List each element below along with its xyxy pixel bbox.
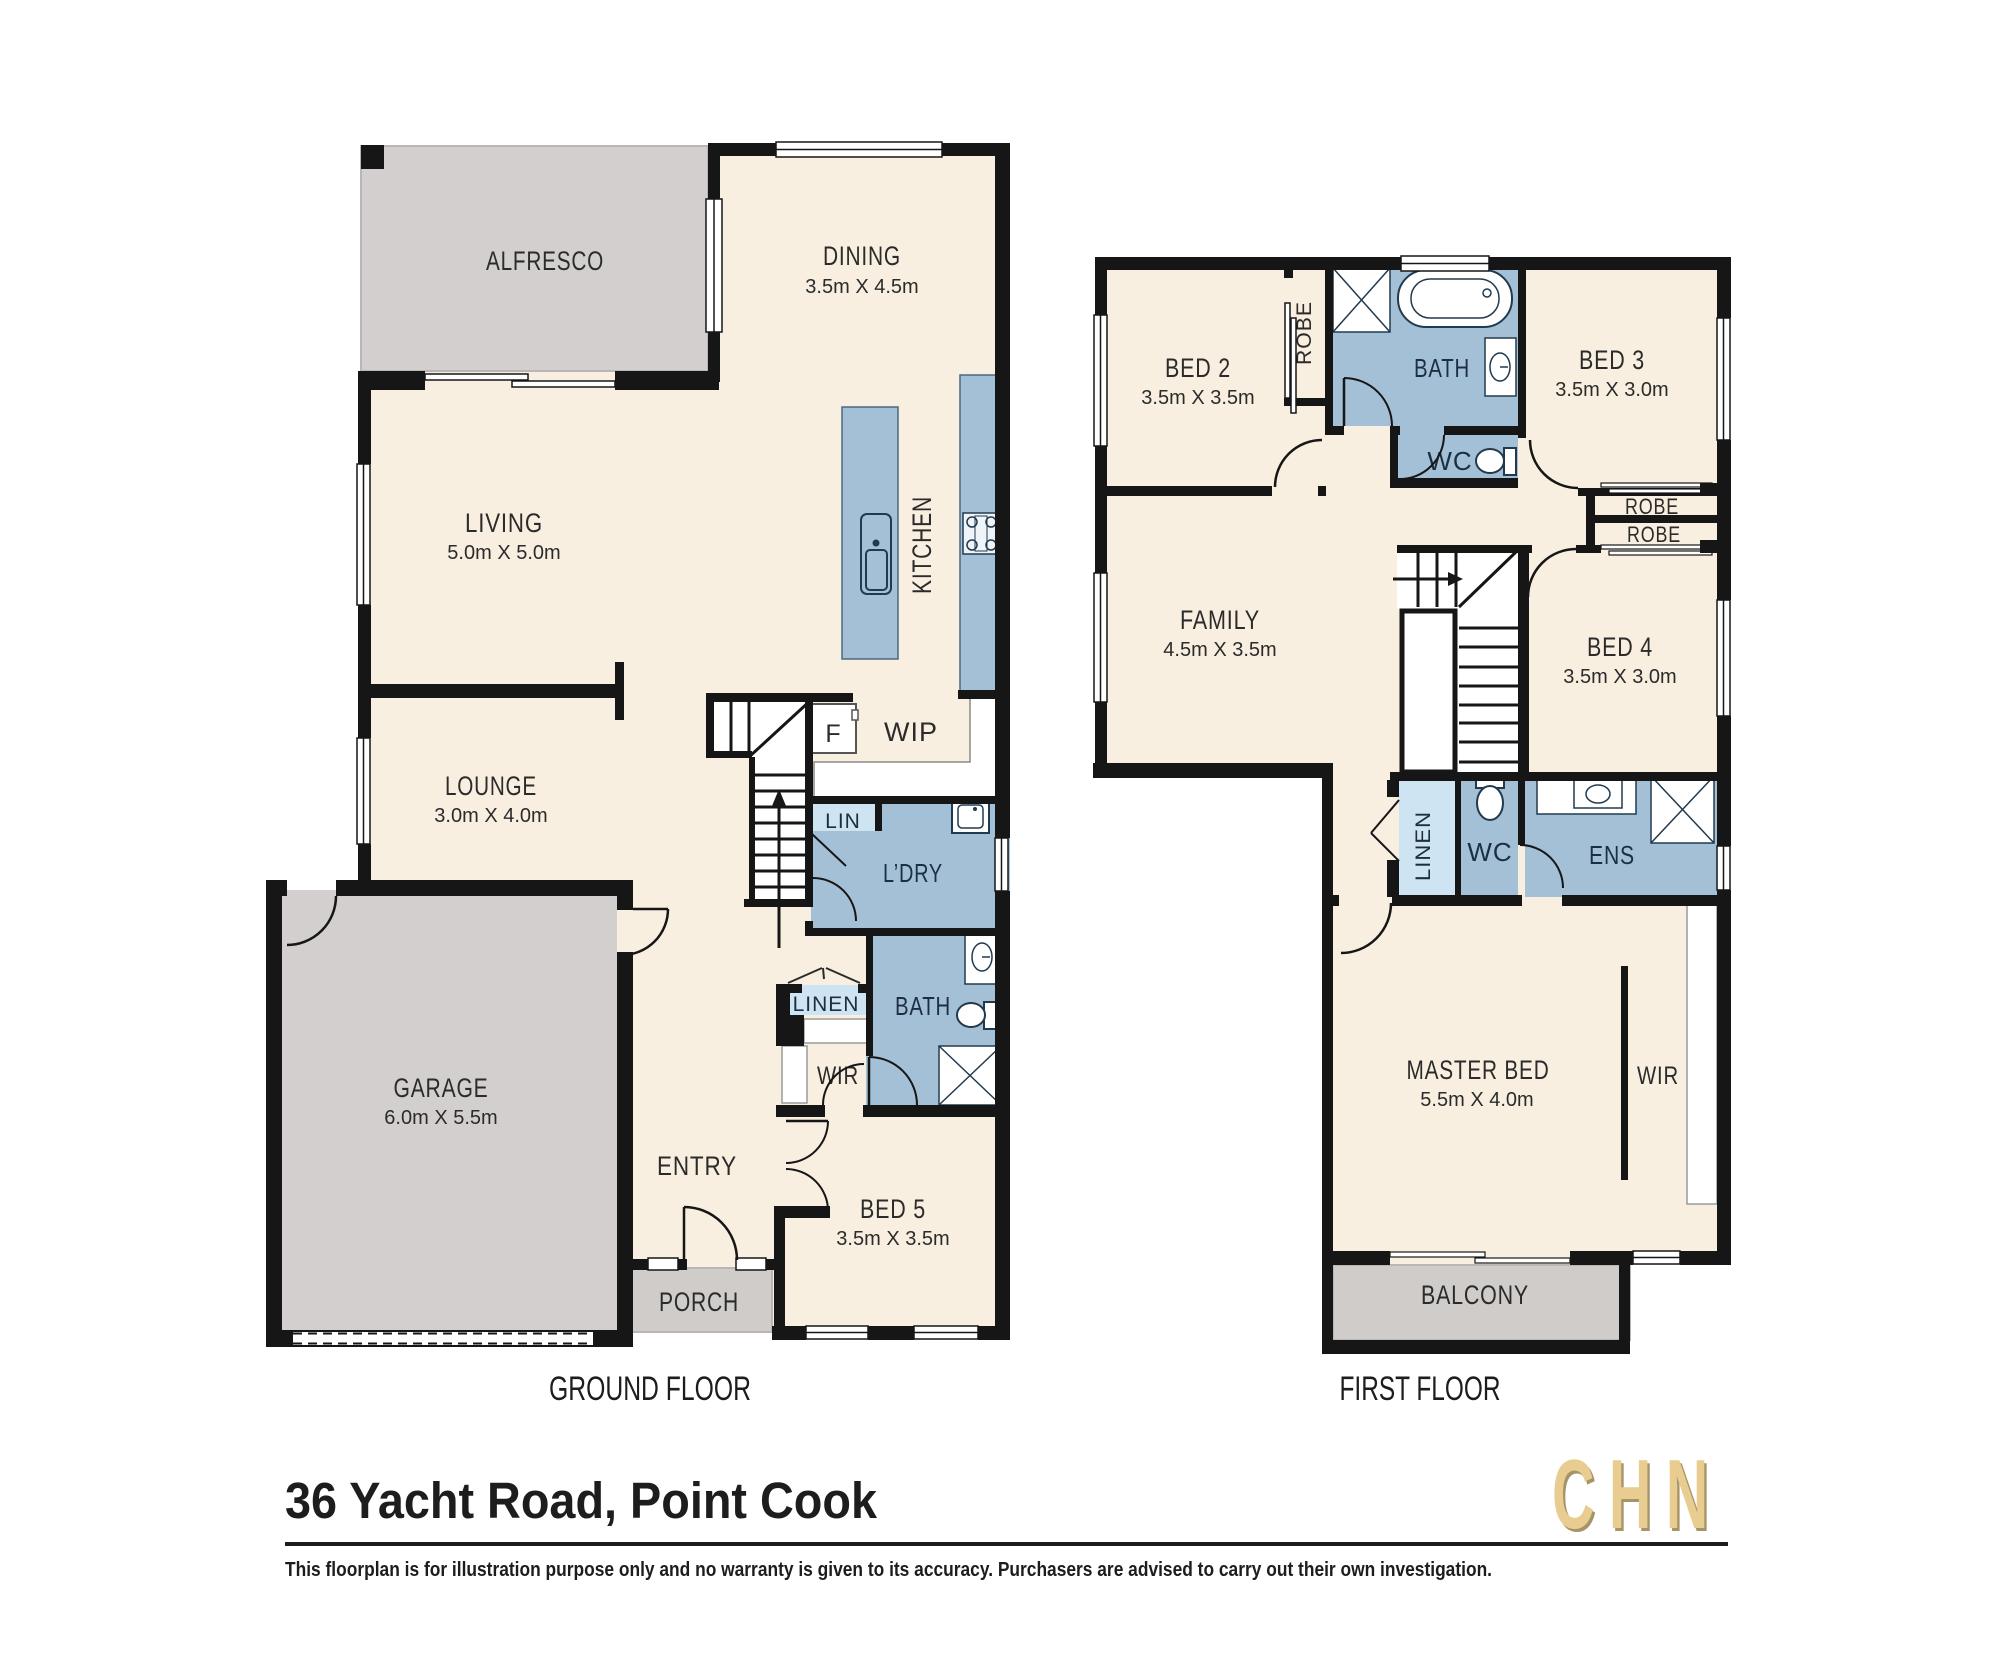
- svg-text:F: F: [825, 720, 840, 748]
- svg-text:WC: WC: [1427, 446, 1472, 476]
- svg-text:5.5m X 4.0m: 5.5m X 4.0m: [1420, 1089, 1533, 1111]
- svg-text:ENTRY: ENTRY: [657, 1151, 737, 1181]
- svg-text:KITCHEN: KITCHEN: [907, 496, 937, 594]
- svg-text:BATH: BATH: [895, 991, 951, 1021]
- svg-text:36 Yacht Road, Point Cook: 36 Yacht Road, Point Cook: [285, 1472, 878, 1529]
- svg-text:3.5m X 4.5m: 3.5m X 4.5m: [805, 276, 918, 298]
- svg-text:5.0m X 5.0m: 5.0m X 5.0m: [447, 542, 560, 564]
- svg-text:LOUNGE: LOUNGE: [445, 771, 537, 801]
- svg-text:DINING: DINING: [823, 241, 901, 271]
- svg-text:BED 3: BED 3: [1579, 345, 1645, 375]
- svg-text:3.5m X 3.5m: 3.5m X 3.5m: [836, 1228, 949, 1250]
- svg-text:GARAGE: GARAGE: [394, 1073, 489, 1103]
- svg-text:ROBE: ROBE: [1627, 522, 1681, 547]
- svg-text:6.0m X 5.5m: 6.0m X 5.5m: [384, 1107, 497, 1129]
- svg-text:GROUND FLOOR: GROUND FLOOR: [549, 1370, 751, 1408]
- svg-text:ENS: ENS: [1589, 840, 1635, 870]
- svg-text:BALCONY: BALCONY: [1421, 1280, 1529, 1310]
- svg-text:BED 2: BED 2: [1165, 353, 1231, 383]
- svg-text:WIP: WIP: [884, 717, 938, 747]
- svg-text:BED 4: BED 4: [1587, 632, 1653, 662]
- svg-text:MASTER BED: MASTER BED: [1407, 1055, 1550, 1085]
- svg-text:FIRST FLOOR: FIRST FLOOR: [1340, 1370, 1501, 1408]
- svg-text:LINEN: LINEN: [793, 993, 860, 1016]
- svg-text:BATH: BATH: [1414, 353, 1470, 383]
- svg-text:LINEN: LINEN: [1412, 811, 1435, 881]
- svg-text:WC: WC: [1467, 837, 1512, 867]
- svg-text:L’DRY: L’DRY: [883, 858, 943, 888]
- svg-text:FAMILY: FAMILY: [1180, 605, 1260, 635]
- svg-text:BED 5: BED 5: [860, 1194, 926, 1224]
- svg-text:WIR: WIR: [1637, 1062, 1679, 1090]
- svg-text:3.0m X 4.0m: 3.0m X 4.0m: [434, 805, 547, 827]
- svg-text:4.5m X 3.5m: 4.5m X 3.5m: [1163, 639, 1276, 661]
- svg-text:3.5m X 3.0m: 3.5m X 3.0m: [1563, 666, 1676, 688]
- svg-text:LIVING: LIVING: [465, 508, 543, 538]
- svg-text:PORCH: PORCH: [659, 1287, 739, 1317]
- svg-text:3.5m X 3.5m: 3.5m X 3.5m: [1141, 387, 1254, 409]
- svg-text:CHN: CHN: [1552, 1441, 1723, 1550]
- svg-text:ALFRESCO: ALFRESCO: [486, 246, 604, 276]
- svg-text:LIN: LIN: [825, 810, 861, 833]
- svg-text:This floorplan is for illustra: This floorplan is for illustration purpo…: [285, 1558, 1492, 1581]
- svg-text:3.5m X 3.0m: 3.5m X 3.0m: [1555, 379, 1668, 401]
